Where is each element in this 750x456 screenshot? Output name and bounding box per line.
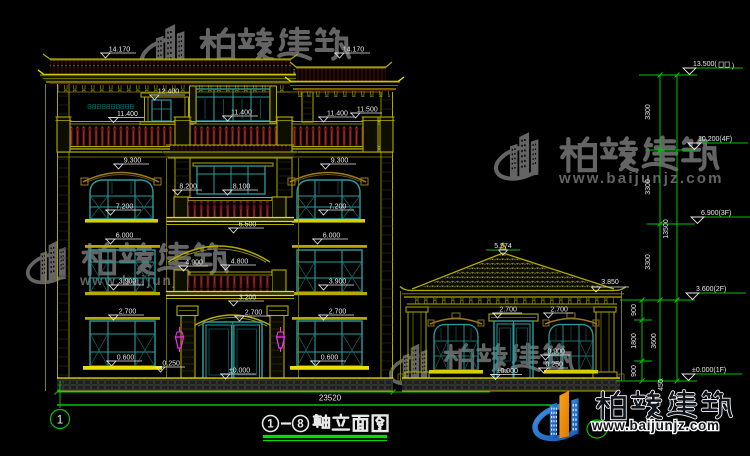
svg-text:6.900(3F): 6.900(3F)	[701, 210, 731, 217]
svg-text:3300: 3300	[645, 104, 652, 120]
svg-text:4.800: 4.800	[231, 259, 249, 266]
svg-text:11.400: 11.400	[117, 111, 138, 118]
svg-text:4.900: 4.900	[185, 260, 203, 267]
svg-text:13500: 13500	[663, 219, 670, 239]
svg-text:1800: 1800	[631, 333, 638, 349]
svg-text:3.200: 3.200	[239, 295, 257, 302]
svg-text:0.250: 0.250	[545, 362, 563, 369]
svg-text:14.170: 14.170	[343, 47, 365, 54]
svg-text:23520: 23520	[319, 394, 342, 403]
svg-text:3600: 3600	[651, 333, 658, 349]
svg-text:14.170: 14.170	[109, 47, 131, 54]
svg-text:9.300: 9.300	[331, 158, 349, 165]
svg-text:2.700: 2.700	[550, 307, 568, 314]
svg-text:900: 900	[631, 365, 638, 377]
svg-text:3.900: 3.900	[329, 279, 347, 286]
svg-text:±0.000: ±0.000	[229, 368, 250, 375]
svg-text:8.200: 8.200	[179, 184, 197, 191]
svg-text:www.baijunjz.com: www.baijunjz.com	[558, 170, 724, 187]
svg-text:0.600: 0.600	[321, 355, 339, 362]
svg-text:2.700: 2.700	[245, 310, 263, 317]
svg-text:5.574: 5.574	[494, 243, 512, 250]
svg-text:2.700: 2.700	[329, 309, 347, 316]
svg-text:2.700: 2.700	[119, 309, 137, 316]
svg-text:www.baijunjz.com: www.baijunjz.com	[591, 418, 720, 433]
svg-text:6.000: 6.000	[116, 233, 134, 240]
svg-text:0.900: 0.900	[547, 349, 565, 356]
svg-text:0.250: 0.250	[162, 361, 180, 368]
svg-text:13.500(: 13.500(	[693, 61, 717, 68]
svg-text:8: 8	[297, 419, 304, 431]
svg-text:0.600: 0.600	[117, 355, 135, 362]
svg-text:9.300: 9.300	[124, 158, 142, 165]
svg-text:±0.000: ±0.000	[497, 368, 518, 375]
svg-text:3.850: 3.850	[601, 279, 619, 286]
svg-text:1: 1	[267, 419, 274, 431]
svg-text:11.400: 11.400	[231, 110, 252, 117]
svg-text:6.500: 6.500	[239, 222, 257, 229]
svg-text:12.400: 12.400	[158, 89, 180, 96]
svg-text:11.500: 11.500	[357, 107, 378, 114]
svg-text:6.000: 6.000	[323, 233, 341, 240]
svg-text:7.200: 7.200	[116, 204, 134, 211]
svg-text:8.100: 8.100	[233, 184, 251, 191]
svg-text:3.900: 3.900	[119, 279, 137, 286]
svg-text:3.600(2F): 3.600(2F)	[696, 286, 726, 293]
svg-text:±0.000(1F): ±0.000(1F)	[692, 367, 726, 374]
svg-text:7.200: 7.200	[329, 204, 347, 211]
svg-text:450: 450	[658, 379, 665, 391]
svg-text:3300: 3300	[645, 254, 652, 270]
svg-text:): )	[732, 63, 734, 70]
svg-text:10.200(4F): 10.200(4F)	[698, 136, 732, 143]
svg-text:2.700: 2.700	[499, 307, 517, 314]
svg-text:900: 900	[631, 304, 638, 316]
svg-text:1: 1	[57, 413, 64, 427]
svg-text:11.400: 11.400	[327, 111, 348, 118]
svg-text:3300: 3300	[645, 179, 652, 195]
